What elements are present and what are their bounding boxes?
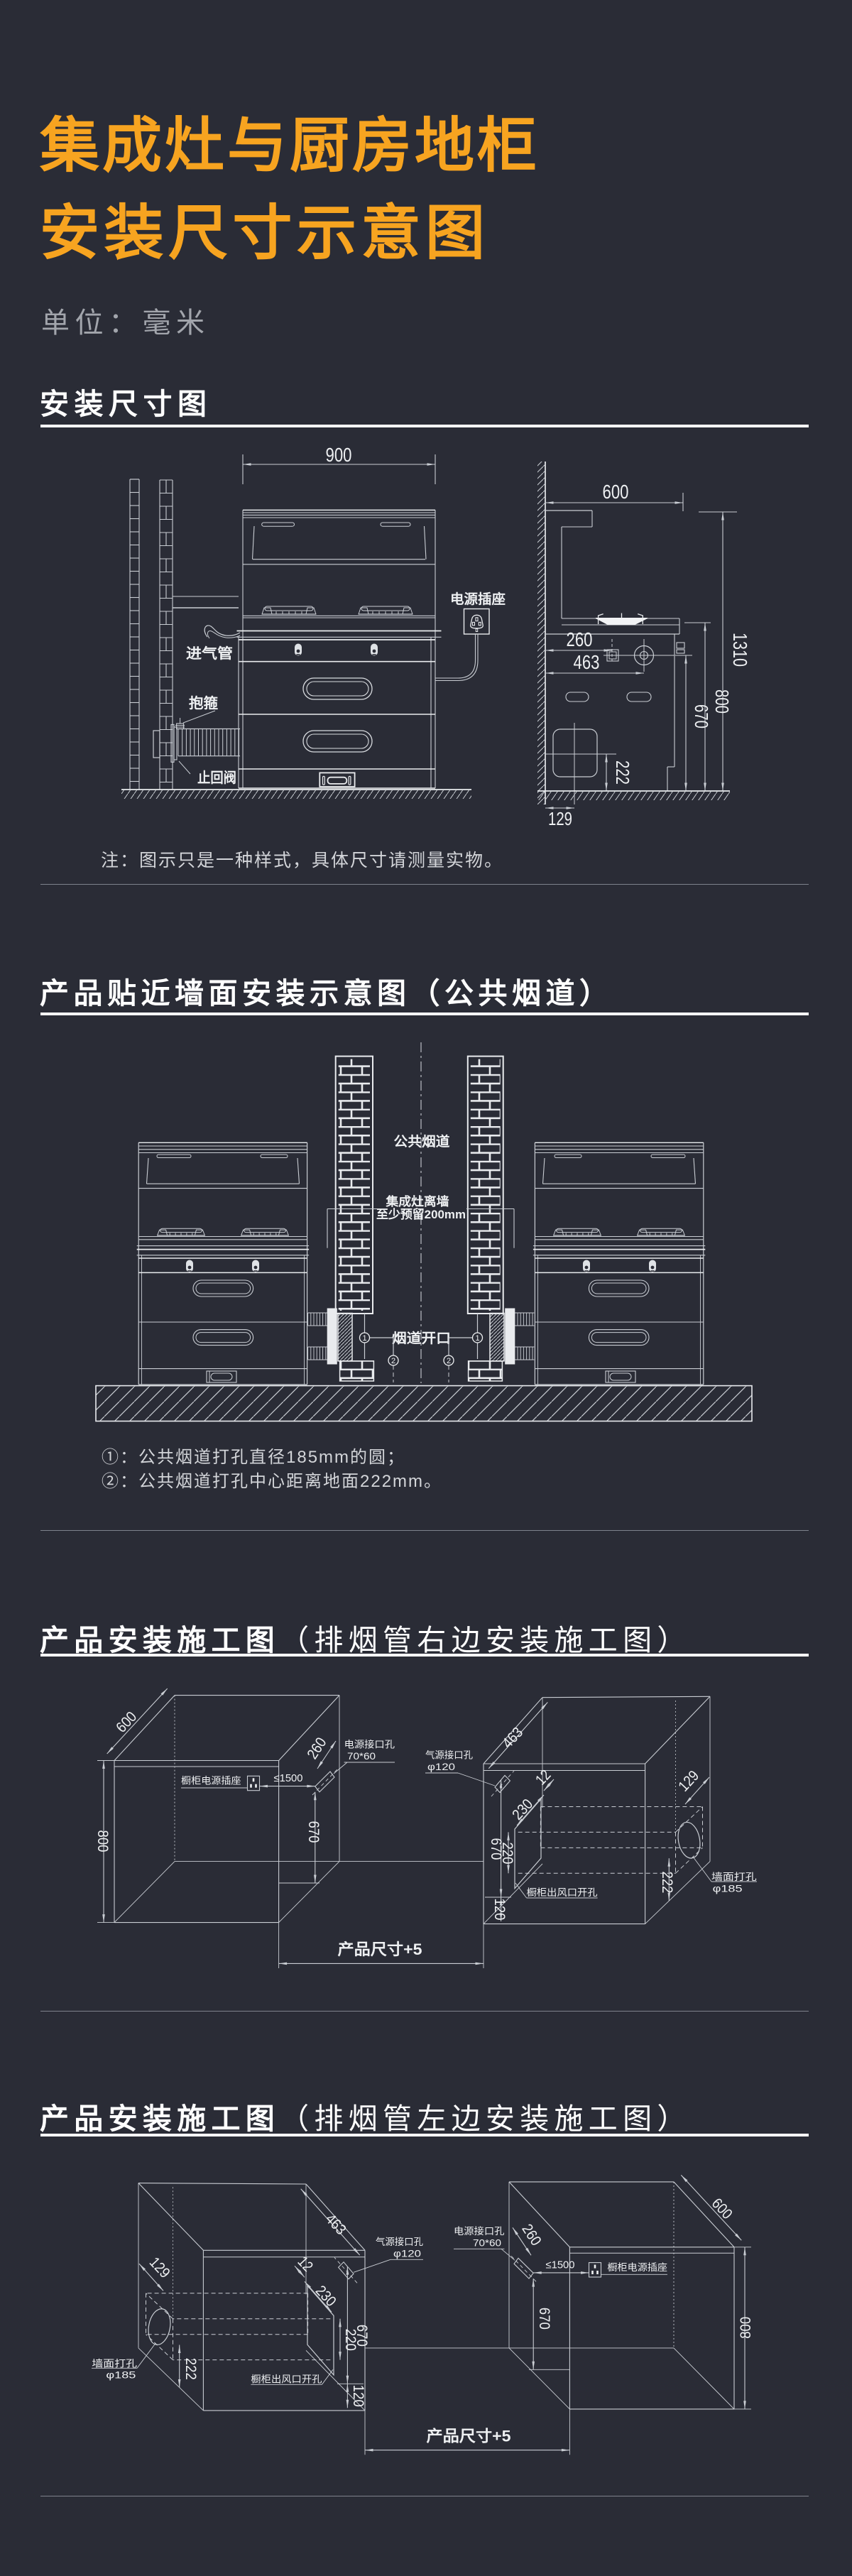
svg-text:12: 12 [532,1767,554,1788]
svg-text:463: 463 [499,1724,526,1751]
svg-text:120: 120 [491,1899,508,1921]
svg-text:至少预留200mm: 至少预留200mm [376,1207,466,1221]
svg-text:900: 900 [326,444,352,466]
svg-text:产品尺寸+5: 产品尺寸+5 [427,2427,511,2445]
svg-text:2: 2 [391,1357,395,1365]
svg-text:公共烟道: 公共烟道 [394,1133,450,1150]
svg-text:电源接口孔: 电源接口孔 [454,2225,505,2237]
svg-text:抱箍: 抱箍 [189,694,218,711]
svg-text:φ185: φ185 [106,2369,136,2381]
svg-text:电源接口孔: 电源接口孔 [344,1739,395,1750]
svg-text:墙面打孔: 墙面打孔 [711,1871,757,1882]
svg-text:222: 222 [659,1872,675,1894]
svg-text:2: 2 [447,1357,451,1365]
svg-text:463: 463 [322,2211,349,2238]
svg-text:463: 463 [574,651,600,673]
svg-text:800: 800 [94,1830,111,1852]
svg-text:120: 120 [350,2385,366,2407]
svg-text:橱柜电源插座: 橱柜电源插座 [607,2262,667,2273]
svg-text:橱柜出风口开孔: 橱柜出风口开孔 [527,1887,599,1898]
svg-text:230: 230 [312,2283,339,2310]
svg-text:129: 129 [548,808,572,829]
svg-text:烟道开口: 烟道开口 [392,1330,451,1346]
svg-text:220: 220 [342,2329,359,2351]
svg-text:70*60: 70*60 [347,1750,376,1762]
svg-text:1: 1 [362,1334,366,1343]
svg-text:集成灶离墙: 集成灶离墙 [385,1194,449,1208]
svg-text:≤1500: ≤1500 [274,1772,303,1784]
svg-text:≤1500: ≤1500 [546,2259,575,2271]
svg-text:70*60: 70*60 [473,2237,501,2248]
svg-text:600: 600 [709,2195,736,2222]
svg-text:800: 800 [738,2317,754,2339]
svg-text:670: 670 [536,2308,552,2330]
svg-text:260: 260 [518,2221,544,2249]
svg-text:129: 129 [146,2254,173,2281]
svg-text:670: 670 [691,704,712,728]
svg-text:600: 600 [603,481,629,503]
svg-text:墙面打孔: 墙面打孔 [92,2357,137,2369]
svg-text:1: 1 [475,1334,479,1343]
svg-text:气源接口孔: 气源接口孔 [425,1750,473,1761]
svg-text:800: 800 [711,689,733,714]
svg-text:12: 12 [295,2254,316,2275]
svg-text:1310: 1310 [729,633,751,667]
svg-text:气源接口孔: 气源接口孔 [376,2236,423,2247]
svg-text:进气管: 进气管 [186,645,233,662]
svg-text:260: 260 [567,628,593,650]
svg-text:230: 230 [509,1796,536,1823]
svg-text:220: 220 [499,1843,515,1865]
svg-text:橱柜电源插座: 橱柜电源插座 [181,1776,241,1786]
svg-text:φ185: φ185 [713,1882,743,1894]
svg-text:φ120: φ120 [427,1761,455,1772]
svg-text:260: 260 [304,1735,329,1762]
svg-text:电源插座: 电源插座 [450,591,506,607]
svg-text:670: 670 [305,1821,322,1843]
svg-text:橱柜出风口开孔: 橱柜出风口开孔 [251,2374,322,2384]
svg-text:φ120: φ120 [393,2247,421,2259]
svg-text:600: 600 [113,1708,140,1735]
svg-text:222: 222 [182,2358,199,2380]
svg-text:222: 222 [612,760,633,785]
svg-text:129: 129 [675,1767,702,1794]
svg-text:止回阀: 止回阀 [197,770,236,786]
svg-text:产品尺寸+5: 产品尺寸+5 [338,1941,422,1958]
